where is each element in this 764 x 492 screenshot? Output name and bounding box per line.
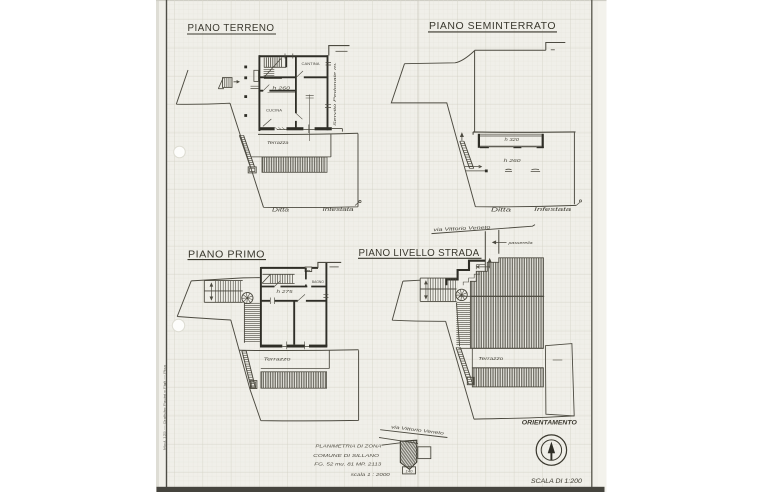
svg-text:PIANO LIVELLO STRADA: PIANO LIVELLO STRADA (359, 247, 480, 259)
svg-text:Terrazza: Terrazza (267, 140, 289, 145)
svg-text:Intestata: Intestata (323, 207, 354, 213)
svg-text:h 260: h 260 (504, 158, 522, 163)
svg-text:FG. 52 mu. 81 MP. 2113: FG. 52 mu. 81 MP. 2113 (314, 461, 382, 466)
svg-text:h 275: h 275 (277, 289, 294, 294)
svg-text:h 320: h 320 (505, 137, 520, 142)
svg-text:PIANO TERRENO: PIANO TERRENO (188, 22, 275, 34)
svg-text:scala 1 : 2000: scala 1 : 2000 (351, 472, 391, 477)
svg-text:passerella: passerella (507, 240, 533, 245)
svg-text:Ditta: Ditta (491, 207, 511, 213)
svg-text:140: 140 (406, 469, 413, 473)
svg-text:Infestata: Infestata (534, 207, 571, 213)
svg-text:Ditta: Ditta (272, 207, 289, 213)
svg-text:h 260: h 260 (273, 85, 291, 90)
svg-text:CUCINA: CUCINA (266, 108, 283, 112)
svg-text:Mod. 125 — Grafiche Pacini e F: Mod. 125 — Grafiche Pacini e Figli — Pis… (163, 365, 167, 450)
svg-text:SCALA DI 1:200: SCALA DI 1:200 (531, 478, 583, 485)
svg-text:Terrazzo: Terrazzo (478, 356, 504, 361)
svg-text:PIANO PRIMO: PIANO PRIMO (188, 248, 265, 260)
svg-text:BAGNO: BAGNO (312, 280, 325, 284)
svg-text:ORIENTAMENTO: ORIENTAMENTO (522, 420, 577, 427)
svg-text:PLANIMETRIA DI ZONA: PLANIMETRIA DI ZONA (315, 444, 381, 449)
svg-text:Servitù Pedonale m.: Servitù Pedonale m. (332, 62, 337, 126)
svg-text:PIANO SEMINTERRATO: PIANO SEMINTERRATO (429, 20, 556, 32)
svg-text:COMUNE DI SILLANO: COMUNE DI SILLANO (313, 453, 379, 458)
svg-text:Terrazzo: Terrazzo (264, 357, 292, 362)
svg-text:CANTINA: CANTINA (302, 62, 321, 66)
